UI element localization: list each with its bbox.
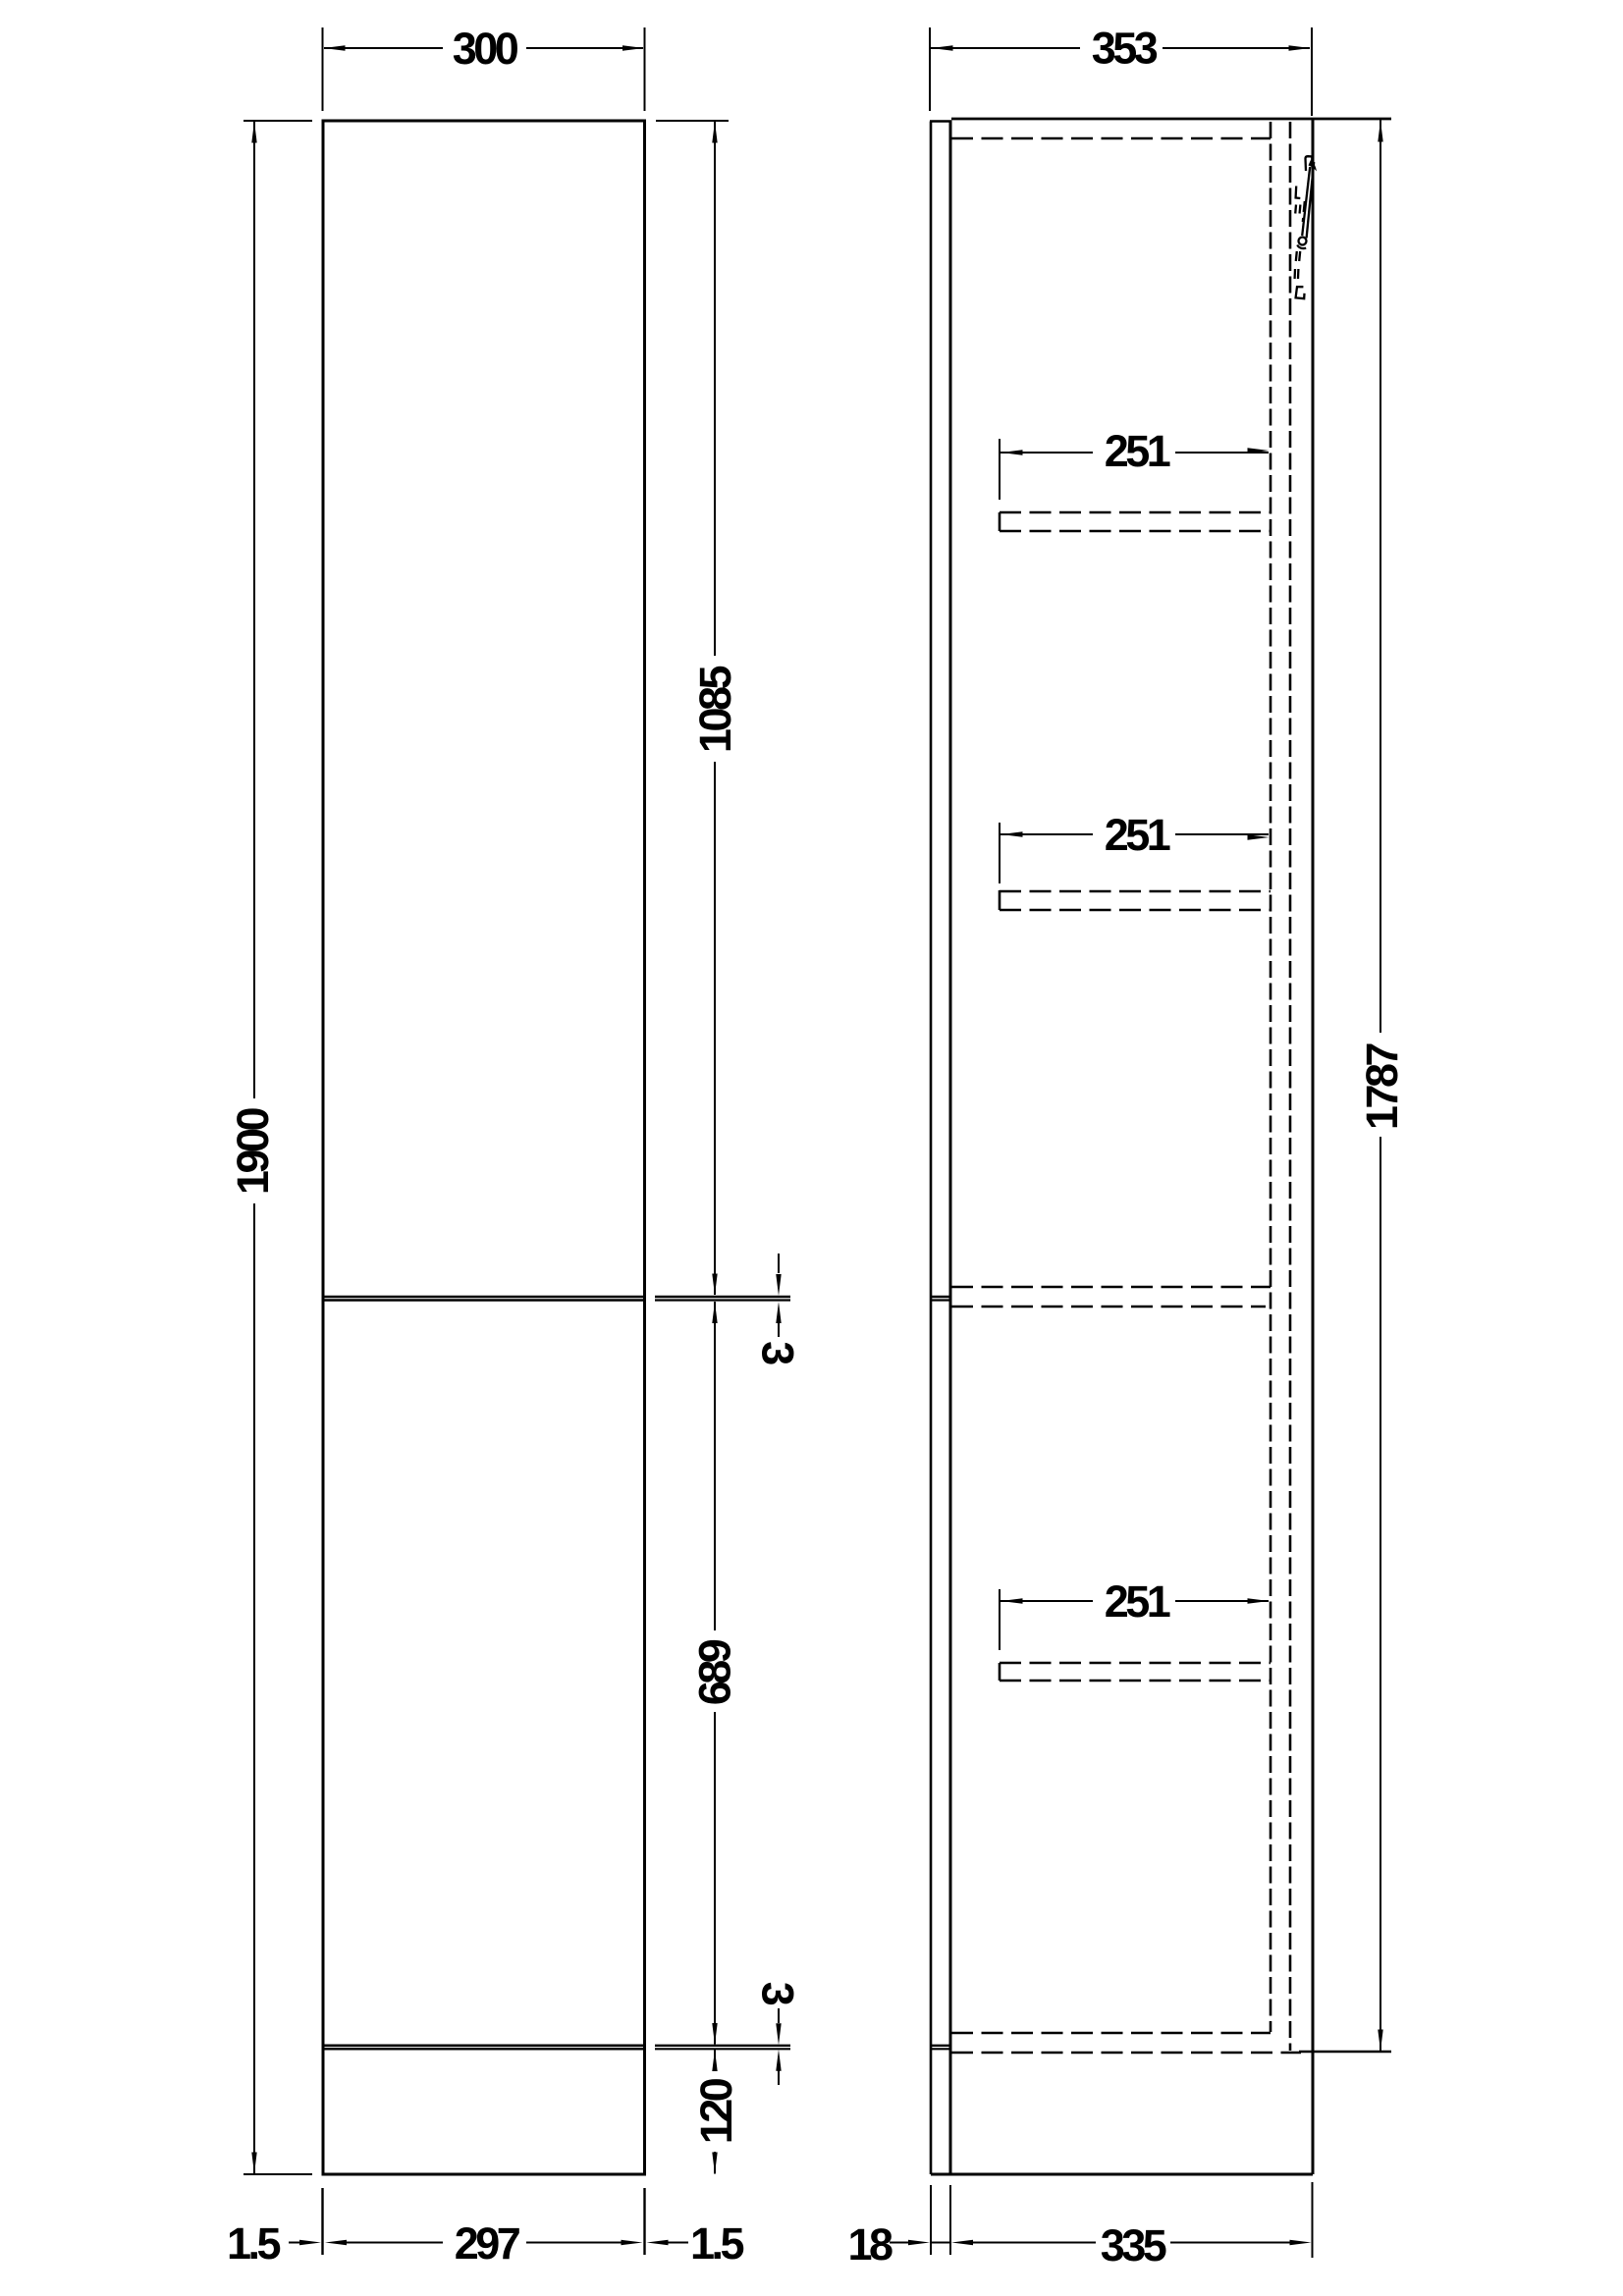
svg-text:251: 251 [1105,810,1170,860]
svg-text:1900: 1900 [228,1107,278,1195]
svg-text:251: 251 [1105,1576,1170,1627]
svg-text:3: 3 [753,1341,803,1364]
svg-text:1.5: 1.5 [227,2218,281,2269]
svg-text:3: 3 [753,1982,803,2005]
svg-text:353: 353 [1092,24,1158,74]
svg-text:297: 297 [455,2218,520,2269]
svg-text:251: 251 [1105,426,1170,476]
svg-text:1.5: 1.5 [690,2218,744,2269]
svg-text:335: 335 [1101,2220,1166,2270]
svg-text:1787: 1787 [1357,1042,1407,1130]
svg-text:689: 689 [690,1639,740,1705]
svg-text:120: 120 [691,2078,741,2144]
svg-text:1085: 1085 [690,666,740,753]
svg-text:300: 300 [453,24,518,74]
svg-text:18: 18 [847,2219,893,2269]
